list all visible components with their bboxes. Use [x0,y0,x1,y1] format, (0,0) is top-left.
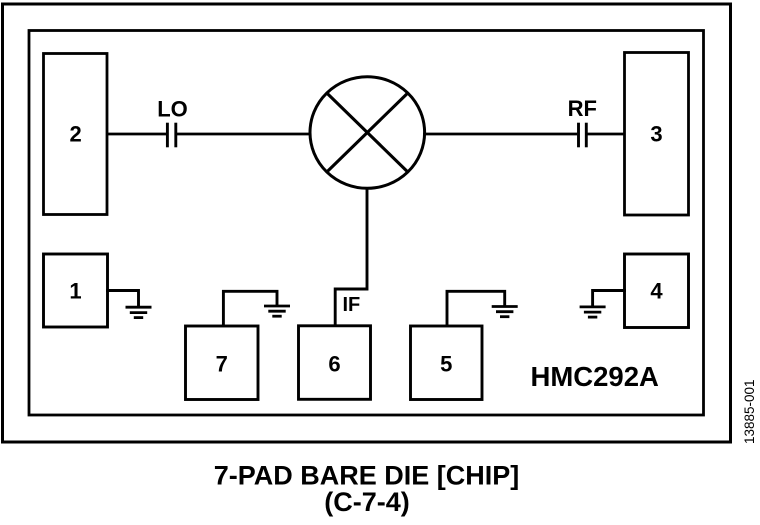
svg-text:2: 2 [69,122,81,147]
svg-text:7: 7 [216,352,228,377]
svg-text:IF: IF [343,294,361,316]
svg-text:5: 5 [440,352,452,377]
svg-text:RF: RF [568,96,597,121]
svg-text:13885-001: 13885-001 [742,379,757,444]
svg-text:7-PAD BARE DIE [CHIP]: 7-PAD BARE DIE [CHIP] [214,460,520,490]
svg-text:3: 3 [650,122,662,147]
svg-text:1: 1 [69,279,81,304]
svg-text:4: 4 [650,279,663,304]
svg-text:6: 6 [328,352,340,377]
svg-text:(C-7-4): (C-7-4) [324,487,410,517]
svg-text:HMC292A: HMC292A [531,361,660,392]
svg-text:LO: LO [157,97,188,122]
